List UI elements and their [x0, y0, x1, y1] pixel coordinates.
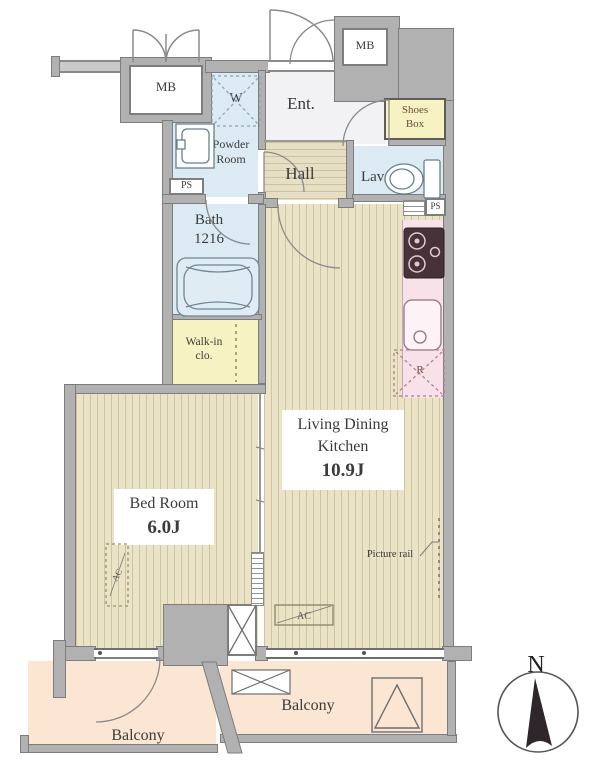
balcony-center-label: Balcony: [262, 697, 354, 715]
bath-label-line1: Bath: [178, 211, 240, 230]
meter-box-left-label: MB: [129, 80, 203, 95]
balcony-right-rail: [447, 661, 456, 736]
entrance-label: Ent.: [266, 94, 336, 114]
bedroom-label: Bed Room 6.0J: [114, 489, 214, 545]
sliding-door-pocket: [251, 552, 264, 606]
bedroom-bottom-wall-a: [64, 646, 96, 661]
left-wall-tab: [53, 640, 66, 698]
bedroom-label-line1: Bed Room: [114, 493, 214, 515]
powder-room-label: Powder Room: [200, 137, 262, 167]
bedroom-left-wall: [64, 384, 76, 658]
powder-room-label-line1: Powder: [200, 137, 262, 152]
ldk-label-line1: Living Dining: [282, 414, 404, 436]
balcony-left-rail-cap: [20, 735, 29, 753]
shoes-box-label-line2: Box: [384, 117, 446, 131]
refrigerator-label: R: [402, 364, 438, 377]
shoes-box-label: Shoes Box: [384, 103, 446, 131]
bath-top-wall-b: [248, 194, 264, 204]
meter-box-right-door: [290, 20, 334, 64]
balcony-left-label: Balcony: [94, 727, 182, 745]
bedroom-size-label: 6.0J: [114, 515, 214, 541]
structural-block: [163, 604, 228, 666]
picture-rail-label: Picture rail: [352, 549, 428, 561]
top-right-wall-block: [398, 28, 454, 102]
floor-plan: MB MB W Ent. Shoes Box Powder Room Hall …: [0, 0, 610, 781]
left-outer-wall: [162, 120, 173, 394]
compass-needle: [526, 678, 552, 748]
walk-in-closet-label-line2: clo.: [174, 349, 234, 363]
corridor-wall-cap: [51, 56, 60, 77]
meter-box-right-label: MB: [342, 39, 388, 53]
bath-ldk-wall: [258, 204, 266, 384]
ldk-label: Living Dining Kitchen 10.9J: [282, 410, 404, 490]
walk-in-closet-label: Walk-in clo.: [174, 335, 234, 363]
right-outer-wall: [443, 100, 454, 648]
bath-label: Bath 1216: [178, 211, 240, 249]
entrance-threshold: [268, 60, 336, 72]
shoes-box-label-line1: Shoes: [384, 103, 446, 117]
hall-label: Hall: [272, 164, 328, 184]
bath-top-wall-a: [162, 194, 206, 204]
washer-label: W: [216, 91, 256, 107]
bedroom-top-wall: [64, 384, 266, 394]
walk-in-closet-label-line1: Walk-in: [174, 335, 234, 349]
ldk-bottom-wall-b: [442, 646, 472, 661]
corridor-wall: [53, 60, 130, 73]
lavatory-label: Lav.: [353, 169, 395, 186]
ldk-label-line2: Kitchen: [282, 436, 404, 458]
pillar-shaft: [227, 604, 257, 656]
louver-hatch: [403, 200, 425, 216]
entrance-door: [270, 10, 333, 62]
ldk-window: [266, 648, 444, 659]
powder-room-label-line2: Room: [200, 152, 262, 167]
entrance-floor-2: [334, 100, 386, 144]
balcony-center-rail: [220, 734, 457, 743]
entrance-hall-step-line: [264, 140, 348, 142]
pipe-space-left-label: PS: [169, 180, 204, 192]
compass: N: [498, 652, 578, 752]
bath-label-line2: 1216: [178, 230, 240, 249]
ldk-size-label: 10.9J: [282, 458, 404, 484]
bedroom-window: [94, 648, 158, 659]
pipe-space-right-label: PS: [425, 201, 446, 211]
compass-north-label: N: [527, 652, 544, 678]
hall-ldk-wall-b: [338, 198, 354, 208]
bath-closet-wall: [172, 314, 262, 320]
